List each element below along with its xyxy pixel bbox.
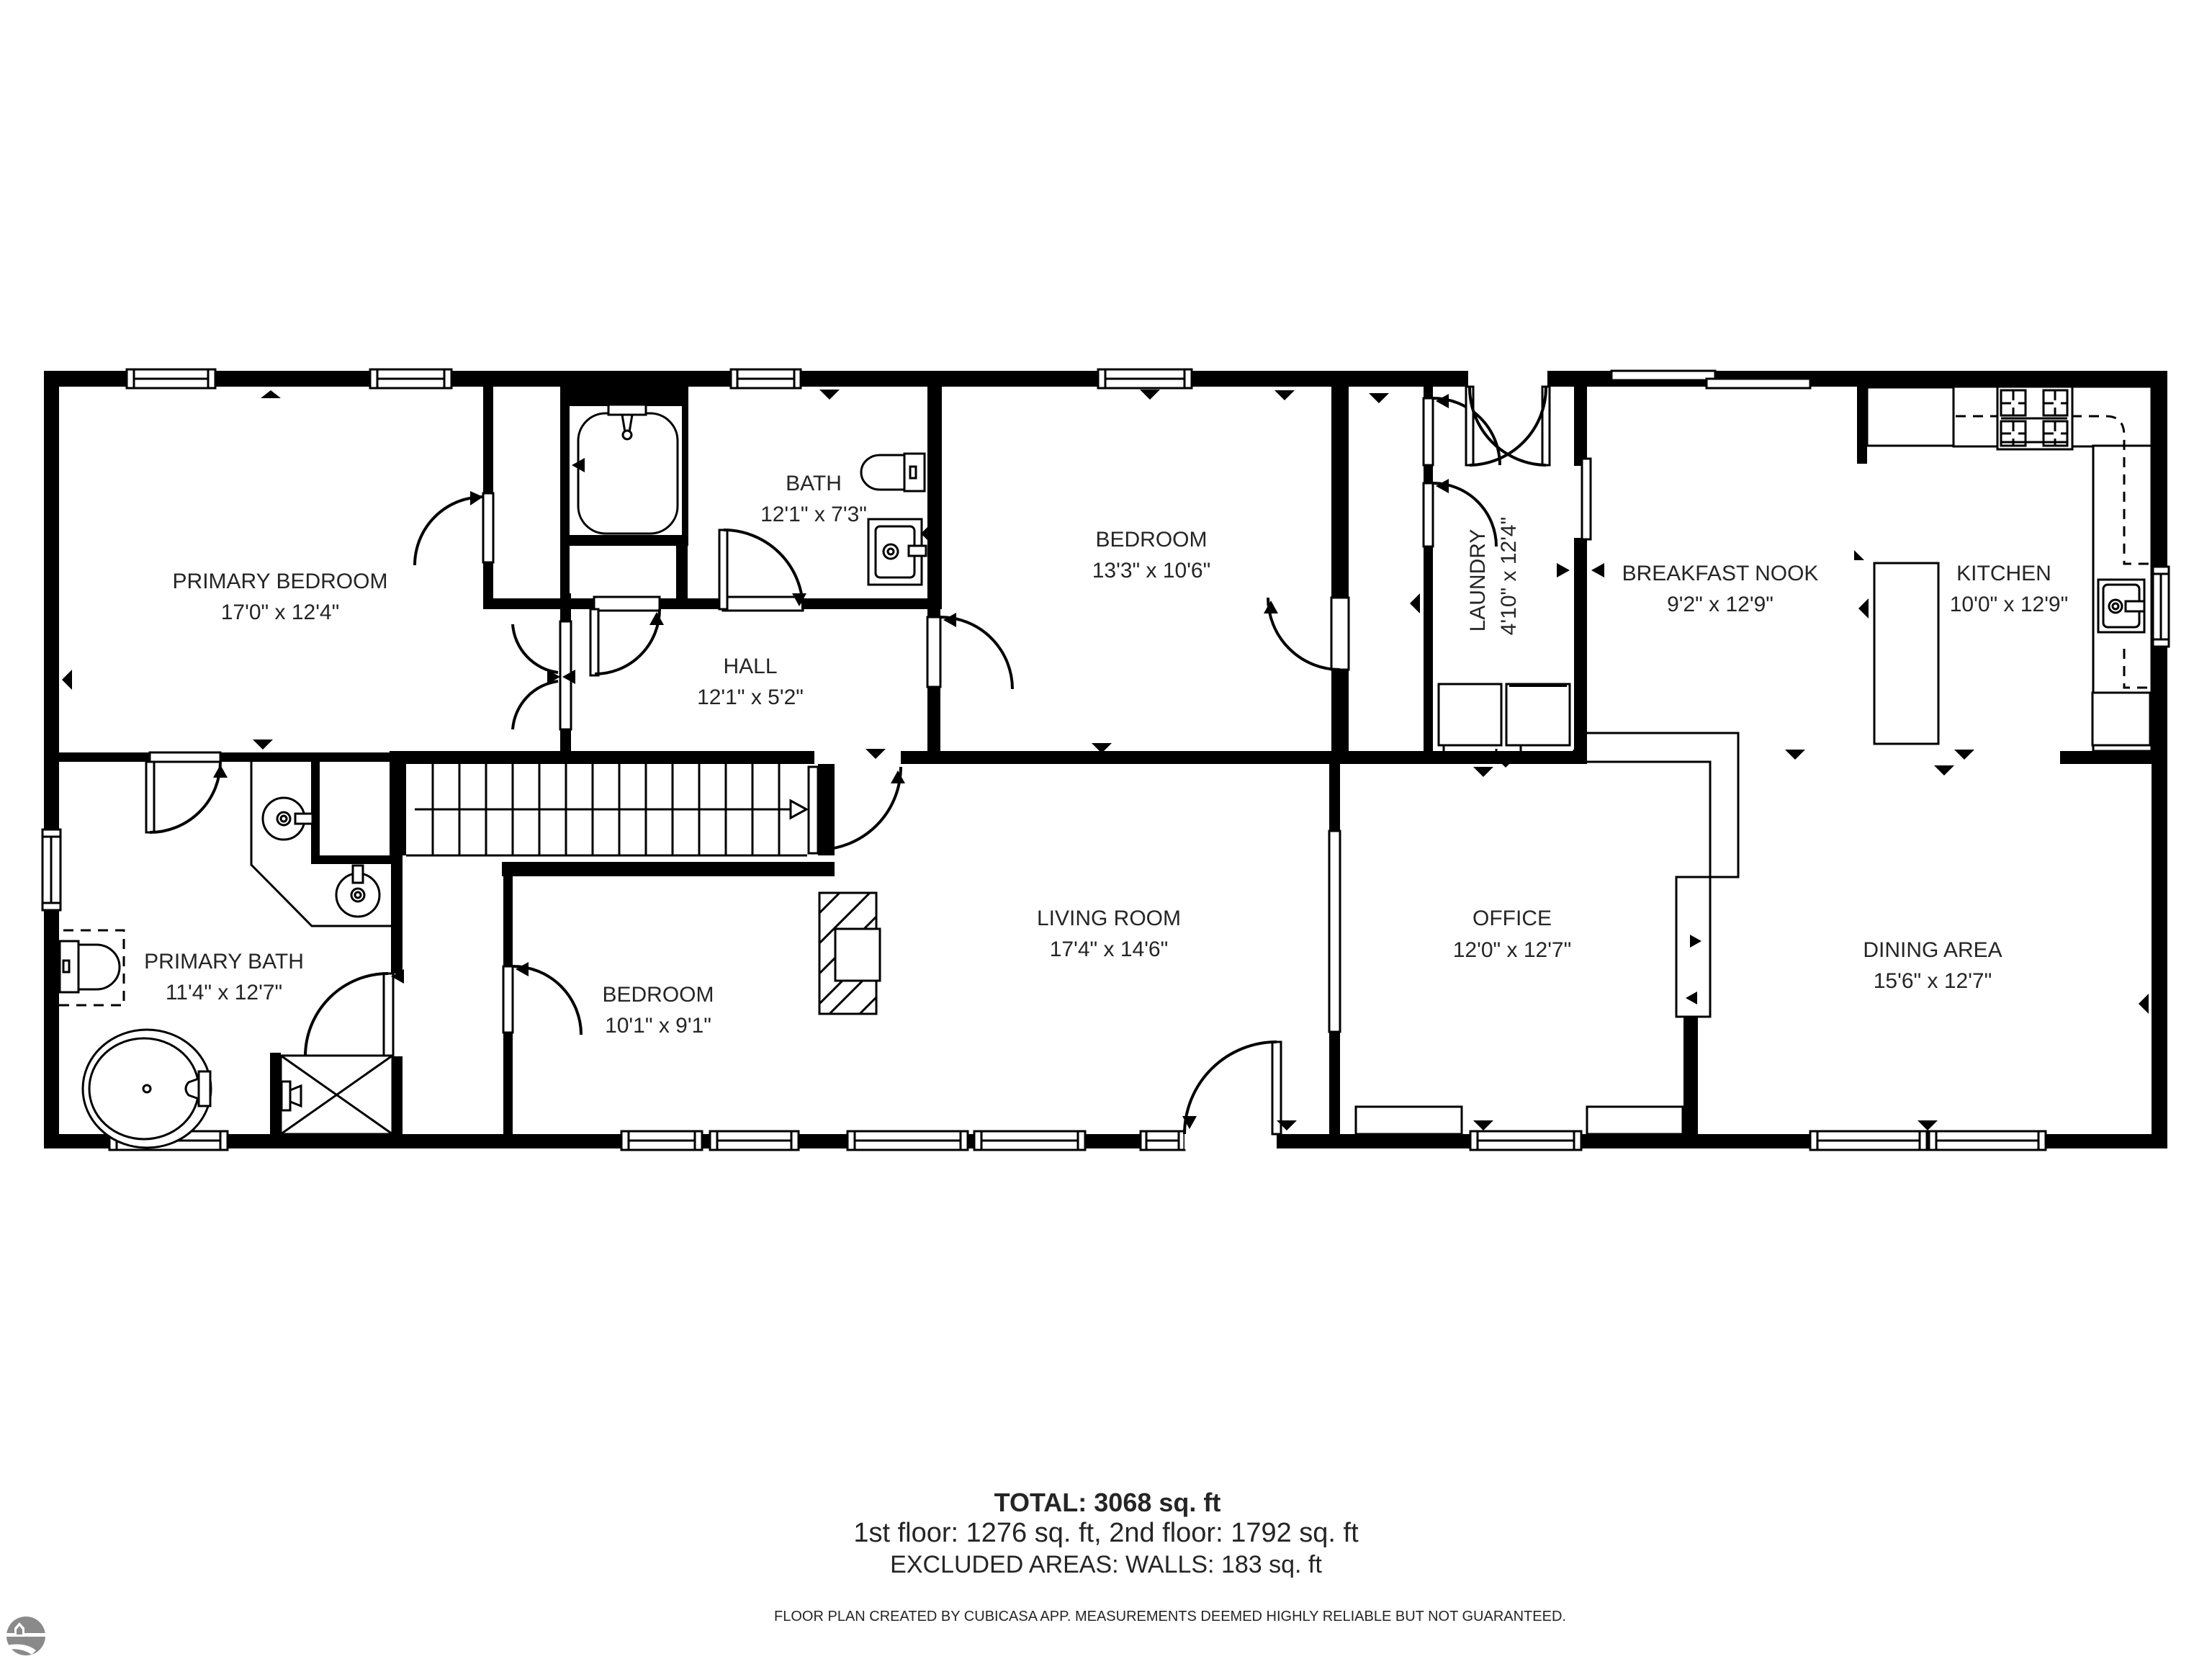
svg-text:15'6" x 12'7": 15'6" x 12'7" xyxy=(1874,969,1992,993)
svg-text:1st floor: 1276 sq. ft, 2nd fl: 1st floor: 1276 sq. ft, 2nd floor: 1792 … xyxy=(853,1518,1359,1548)
svg-text:13'3" x 10'6": 13'3" x 10'6" xyxy=(1092,559,1211,583)
svg-text:HALL: HALL xyxy=(723,655,777,678)
svg-text:FLOOR PLAN CREATED BY CUBICASA: FLOOR PLAN CREATED BY CUBICASA APP. MEAS… xyxy=(774,1609,1566,1624)
svg-text:BATH: BATH xyxy=(786,472,842,495)
svg-text:EXCLUDED AREAS: WALLS: 183 sq.: EXCLUDED AREAS: WALLS: 183 sq. ft xyxy=(890,1551,1322,1578)
svg-text:17'4" x 14'6": 17'4" x 14'6" xyxy=(1050,938,1169,961)
svg-text:TOTAL: 3068 sq. ft: TOTAL: 3068 sq. ft xyxy=(994,1488,1221,1517)
svg-text:KITCHEN: KITCHEN xyxy=(1956,562,2051,585)
svg-text:17'0" x 12'4": 17'0" x 12'4" xyxy=(221,601,340,624)
svg-text:PRIMARY BEDROOM: PRIMARY BEDROOM xyxy=(173,570,388,593)
svg-text:12'1" x 7'3": 12'1" x 7'3" xyxy=(760,503,867,526)
svg-text:BREAKFAST NOOK: BREAKFAST NOOK xyxy=(1622,562,1819,585)
svg-text:OFFICE: OFFICE xyxy=(1473,907,1552,930)
svg-text:PRIMARY BATH: PRIMARY BATH xyxy=(144,950,304,974)
svg-text:12'1" x 5'2": 12'1" x 5'2" xyxy=(697,685,804,709)
svg-text:LAUNDRY: LAUNDRY xyxy=(1466,529,1490,632)
svg-text:11'4" x 12'7": 11'4" x 12'7" xyxy=(166,981,282,1004)
svg-text:9'2" x 12'9": 9'2" x 12'9" xyxy=(1667,593,1773,616)
svg-text:BEDROOM: BEDROOM xyxy=(1095,528,1207,552)
svg-text:LIVING ROOM: LIVING ROOM xyxy=(1037,907,1181,930)
svg-text:DINING AREA: DINING AREA xyxy=(1863,938,2002,962)
svg-text:4'10" x 12'4": 4'10" x 12'4" xyxy=(1497,517,1521,636)
svg-text:12'0" x 12'7": 12'0" x 12'7" xyxy=(1453,938,1572,962)
svg-text:BEDROOM: BEDROOM xyxy=(602,983,714,1007)
svg-text:10'1" x 9'1": 10'1" x 9'1" xyxy=(605,1014,711,1038)
svg-text:10'0" x 12'9": 10'0" x 12'9" xyxy=(1950,593,2069,616)
